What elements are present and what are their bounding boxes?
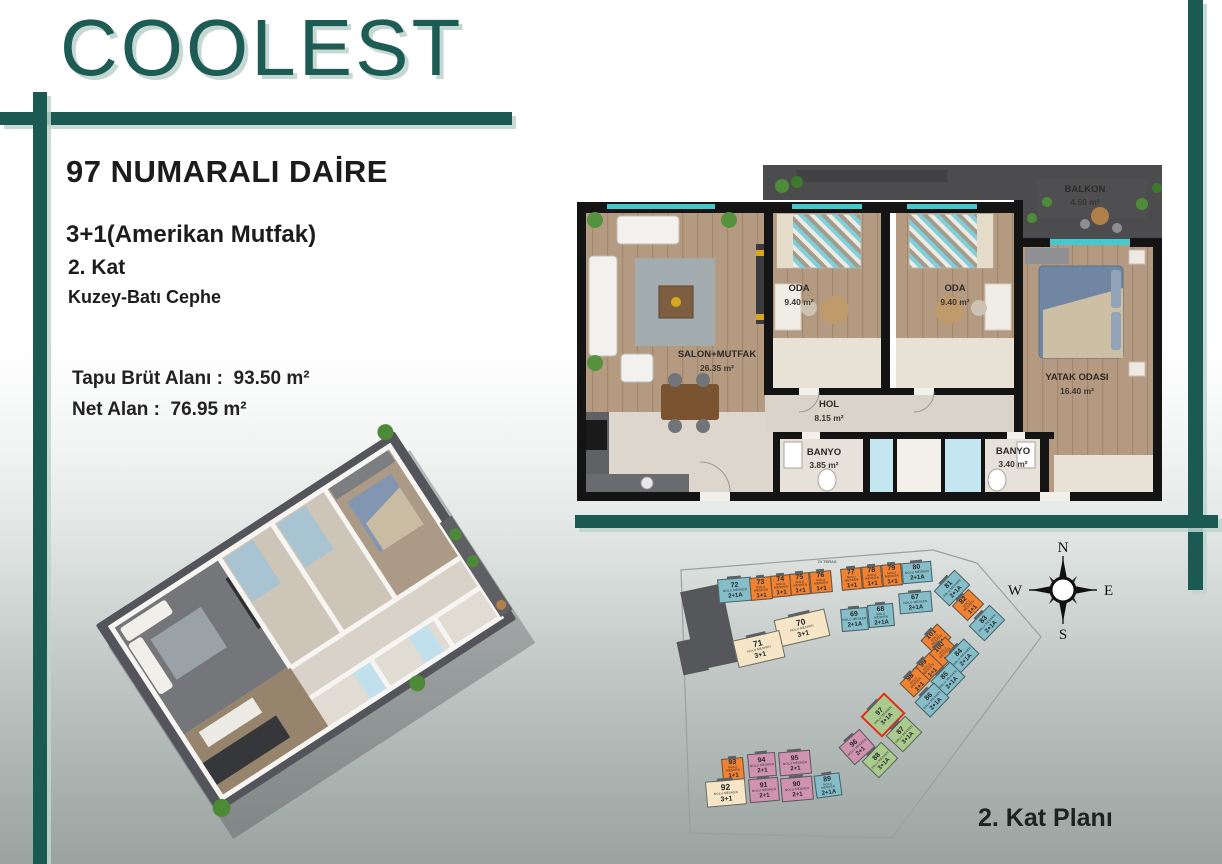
gross-area-value: 93.50 m² — [234, 368, 310, 389]
brand-logo: COOLEST — [60, 2, 463, 94]
label-oda2-area: 9.40 m² — [940, 297, 969, 307]
right-horizontal-bar — [575, 515, 1218, 528]
label-hol-area: 8.15 m² — [814, 413, 843, 423]
gross-area-line: Tapu Brüt Alanı : 93.50 m² — [72, 368, 310, 390]
plan-type: 3+1(Amerikan Mutfak) — [66, 221, 316, 249]
label-yatak-area: 16.40 m² — [1060, 386, 1094, 396]
shower-1 — [870, 439, 895, 492]
label-hol: HOL — [819, 399, 839, 410]
stove — [586, 420, 607, 450]
compass-n: N — [1058, 540, 1069, 556]
label-banyo1-area: 3.85 m² — [809, 460, 838, 470]
neighbor-building — [666, 584, 738, 676]
isometric-render — [62, 412, 562, 864]
site-boundary — [681, 550, 1041, 838]
label-yatak: YATAK ODASI — [1045, 372, 1108, 383]
compass: N S W E — [1008, 540, 1113, 643]
label-salon: SALON+MUTFAK — [678, 349, 757, 360]
shower-2 — [945, 439, 985, 492]
logo-underline-bar — [0, 112, 512, 125]
floor-label: 2. Kat — [68, 256, 125, 280]
right-vertical-bar — [1188, 0, 1203, 590]
label-banyo2: BANYO — [996, 446, 1030, 457]
compass-w: W — [1008, 583, 1023, 599]
sink — [641, 477, 653, 489]
apartment-title: 97 NUMARALI DAİRE — [66, 154, 388, 190]
label-oda2: ODA — [944, 283, 965, 294]
label-oda1-area: 9.40 m² — [784, 297, 813, 307]
label-balkon: BALKON — [1065, 184, 1106, 195]
compass-s: S — [1059, 627, 1067, 643]
facade-label: Kuzey-Batı Cephe — [68, 287, 221, 308]
brochure-page: COOLEST 97 NUMARALI DAİRE 3+1(Amerikan M… — [0, 0, 1222, 864]
left-vertical-bar — [33, 92, 47, 864]
teras-label: 74 TERAS — [817, 560, 837, 565]
label-banyo1: BANYO — [807, 447, 841, 458]
label-oda1: ODA — [788, 283, 809, 294]
compass-e: E — [1104, 583, 1113, 599]
label-salon-area: 26.35 m² — [700, 363, 734, 373]
gross-area-label: Tapu Brüt Alanı : — [72, 368, 223, 389]
floor-plan-2d: SALON+MUTFAK 26.35 m² ODA 9.40 m² ODA 9.… — [577, 158, 1190, 505]
site-plan-title: 2. Kat Planı — [978, 804, 1113, 833]
label-balkon-area: 4.50 m² — [1070, 197, 1099, 207]
label-banyo2-area: 3.40 m² — [998, 459, 1027, 469]
